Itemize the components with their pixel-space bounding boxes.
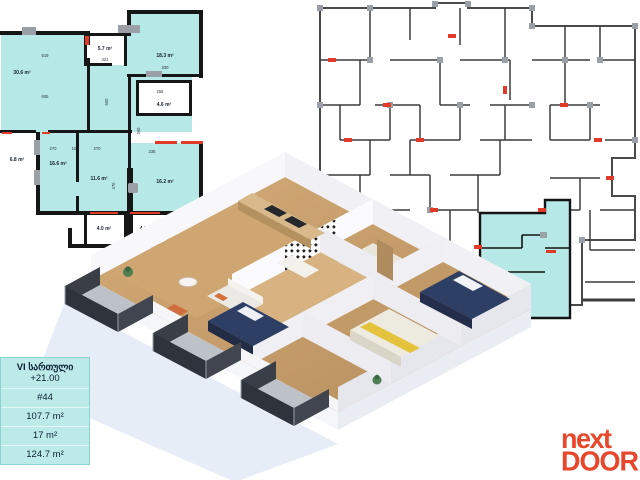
dim-bath-w: 255 xyxy=(157,89,165,94)
logo-word-door: DOOR xyxy=(561,450,638,473)
nextdoor-logo: next DOOR xyxy=(561,428,638,473)
unit-info-box: VI სართული +21.00 #44 107.7 m² 17 m² 124… xyxy=(0,357,90,465)
room-label-bedroom-ne: 18.3 m² xyxy=(156,53,174,59)
room-label-balcony-w: 6.8 m² xyxy=(10,157,25,163)
dim-row-mid: 10 xyxy=(72,146,77,151)
room-label-storage: 5.7 m² xyxy=(98,46,113,52)
balcony-area-value: 17 m² xyxy=(33,430,57,441)
dim-living-bottom: 605 xyxy=(42,94,50,99)
dim-bedroom-e-v: 340 xyxy=(136,127,141,135)
floor-label: VI სართული xyxy=(3,362,87,373)
info-row-balcony-area: 17 m² xyxy=(1,426,89,445)
room-label-bathroom: 4.6 m² xyxy=(157,102,172,108)
dim-row-left: 270 xyxy=(50,146,58,151)
dim-living-top: 519 xyxy=(42,53,50,58)
dim-hall-v: 500 xyxy=(104,98,109,106)
total-area-value: 124.7 m² xyxy=(26,449,64,460)
living-area-value: 107.7 m² xyxy=(26,411,64,422)
unit-number: #44 xyxy=(37,392,53,403)
info-row-unit-number: #44 xyxy=(1,388,89,407)
room-label-living: 30.6 m² xyxy=(13,70,31,76)
apartment-3d-render xyxy=(25,152,545,480)
real-estate-flyer: 30.6 m² 5.7 m² 18.3 m² 4.6 m² 6.8 m² 16.… xyxy=(0,0,640,480)
dim-storage-w: 321 xyxy=(102,57,110,62)
info-row-floor: VI სართული +21.00 xyxy=(1,358,89,388)
info-row-living-area: 107.7 m² xyxy=(1,407,89,426)
elevation-label: +21.00 xyxy=(3,373,87,384)
dim-bedroom-ne-w: 330 xyxy=(162,65,170,70)
info-row-total-area: 124.7 m² xyxy=(1,445,89,464)
coffee-table xyxy=(179,278,197,287)
dim-row-right: 270 xyxy=(94,146,102,151)
